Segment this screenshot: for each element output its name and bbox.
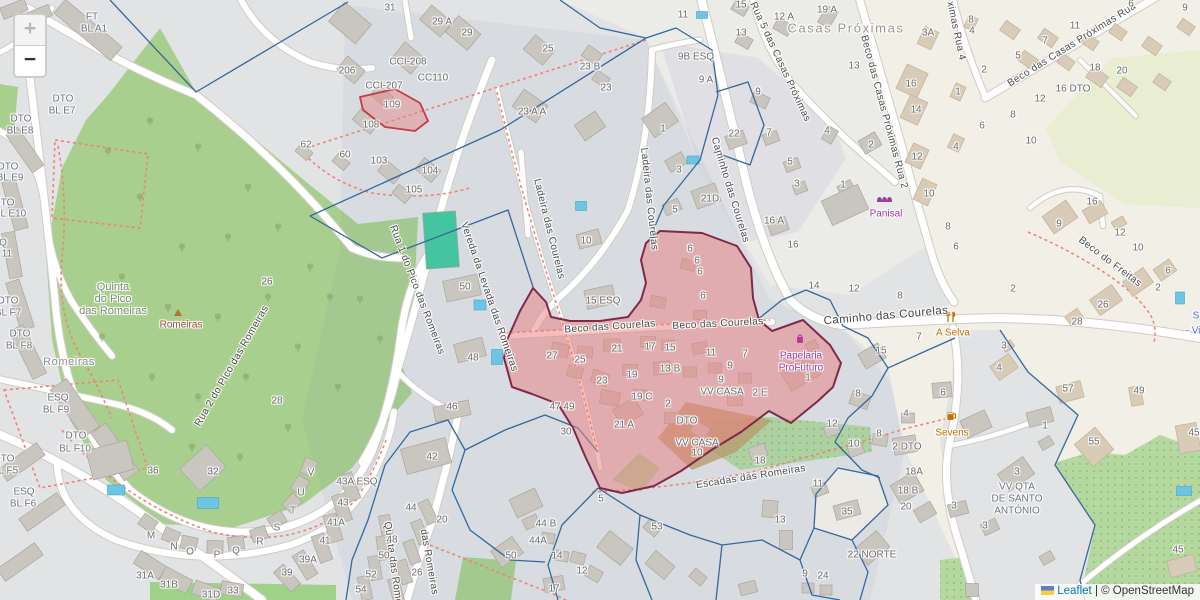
leaflet-link[interactable]: Leaflet bbox=[1057, 585, 1092, 597]
building bbox=[966, 584, 979, 597]
building bbox=[892, 435, 918, 456]
building bbox=[947, 134, 964, 153]
factory-icon bbox=[877, 197, 892, 202]
building bbox=[1000, 20, 1021, 40]
building bbox=[1175, 422, 1200, 453]
building bbox=[902, 413, 915, 423]
building bbox=[1089, 284, 1122, 315]
swimming-pool bbox=[198, 498, 219, 509]
building bbox=[820, 585, 832, 595]
meadow-area bbox=[1046, 50, 1200, 208]
parcel-boundary bbox=[888, 338, 955, 368]
swimming-pool bbox=[697, 12, 708, 19]
osm-attribution: © OpenStreetMap bbox=[1101, 585, 1194, 597]
zoom-in-button[interactable]: + bbox=[15, 15, 45, 46]
building bbox=[1111, 216, 1127, 230]
building bbox=[872, 433, 889, 446]
building bbox=[207, 540, 223, 554]
road bbox=[952, 0, 985, 96]
building bbox=[1038, 28, 1059, 48]
building bbox=[555, 550, 570, 562]
attribution-bar: Leaflet | © OpenStreetMap bbox=[1035, 584, 1200, 600]
ukraine-flag-icon bbox=[1041, 586, 1054, 598]
building bbox=[950, 83, 966, 101]
building bbox=[227, 535, 245, 550]
building bbox=[1123, 267, 1154, 296]
map-canvas[interactable]: Beco das CourelasBeco das CourelasCaminh… bbox=[0, 0, 1200, 600]
swimming-pool bbox=[1177, 487, 1192, 496]
building bbox=[900, 95, 928, 126]
building bbox=[780, 531, 793, 550]
building bbox=[964, 15, 979, 31]
building bbox=[762, 500, 778, 518]
swimming-pool bbox=[108, 485, 125, 495]
building bbox=[917, 26, 939, 50]
building bbox=[932, 382, 952, 399]
attribution-separator: | bbox=[1092, 585, 1101, 597]
zoom-out-button[interactable]: − bbox=[15, 46, 45, 76]
building bbox=[1142, 36, 1163, 56]
building bbox=[180, 535, 198, 551]
building bbox=[1042, 200, 1078, 234]
swimming-pool bbox=[1176, 292, 1185, 304]
building bbox=[541, 532, 556, 544]
map-tiles bbox=[0, 0, 1200, 600]
building bbox=[1128, 386, 1143, 407]
swimming-pool bbox=[576, 202, 587, 211]
building bbox=[1177, 18, 1196, 36]
building bbox=[1153, 259, 1177, 281]
swimming-pool bbox=[492, 350, 503, 365]
swimming-pool bbox=[474, 300, 486, 310]
zoom-control: + − bbox=[13, 13, 47, 78]
building bbox=[896, 64, 928, 98]
